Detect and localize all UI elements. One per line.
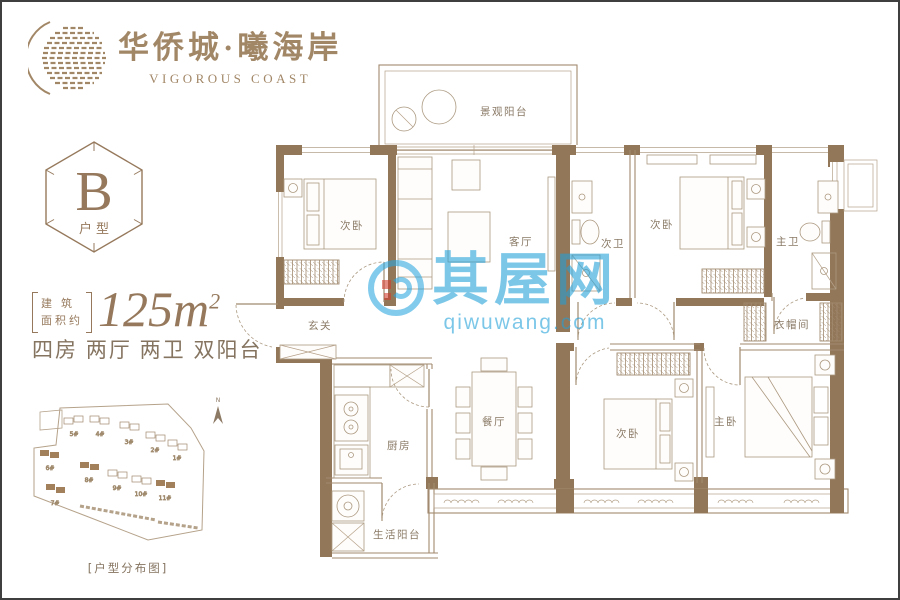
room-label-cloakroom: 衣帽间 xyxy=(774,318,810,331)
bathroom-second: 次卫 xyxy=(572,181,625,340)
layout-description: 四房 两厅 两卫 双阳台 xyxy=(32,334,263,364)
site-plan-caption: [户型分布图] xyxy=(88,561,168,575)
room-label-bedroom-a: 次卧 xyxy=(340,219,364,232)
unit-badge-label: 户型 xyxy=(79,221,113,237)
site-building: 5# xyxy=(64,416,83,438)
master-bedroom: 主卧 xyxy=(704,347,835,479)
crescent-moon-logo xyxy=(28,14,110,102)
room-label-living: 客厅 xyxy=(509,235,533,248)
area-value: 125m2 xyxy=(98,284,220,334)
dining-room: 餐厅 xyxy=(456,358,532,480)
bedroom-c: 次卧 xyxy=(576,347,693,481)
bay-window-strip xyxy=(428,487,848,513)
svg-text:10#: 10# xyxy=(135,491,148,498)
svg-text:5#: 5# xyxy=(70,431,79,438)
site-building-highlight: 8# xyxy=(80,462,99,484)
room-label-bedroom-b: 次卧 xyxy=(650,218,674,231)
svg-text:2#: 2# xyxy=(151,447,160,454)
cloakroom: 衣帽间 xyxy=(744,303,842,341)
room-label-foyer: 玄关 xyxy=(308,319,332,332)
svg-text:1#: 1# xyxy=(173,455,182,462)
svg-text:7#: 7# xyxy=(51,500,60,507)
room-label-master-bedroom: 主卧 xyxy=(714,415,738,428)
unit-badge-letter: B xyxy=(75,161,112,223)
unit-type-badge: B 户型 xyxy=(40,138,148,261)
north-arrow-icon: N xyxy=(213,397,223,424)
area-bracket-bottom: 面积约 xyxy=(41,313,83,330)
kitchen: 厨房 xyxy=(334,365,429,478)
site-building: 4# xyxy=(90,416,109,438)
floorplan-sheet: 华侨城·曦海岸 VIGOROUS COAST B 户型 建 筑 面积约 125m… xyxy=(0,0,900,600)
room-label-service-balcony: 生活阳台 xyxy=(373,528,421,541)
site-building-highlight: 6# xyxy=(40,450,59,472)
site-building: 2# xyxy=(146,432,165,454)
floor-plan: 景观阳台 xyxy=(232,57,892,582)
svg-text:9#: 9# xyxy=(113,485,122,492)
living-room: 客厅 xyxy=(398,157,555,289)
area-info: 建 筑 面积约 125m2 xyxy=(32,284,220,334)
svg-text:11#: 11# xyxy=(159,495,172,502)
svg-text:8#: 8# xyxy=(85,477,94,484)
site-building-highlight: 7# xyxy=(46,484,65,507)
room-label-master-bath: 主卫 xyxy=(776,236,800,248)
room-label-view-balcony: 景观阳台 xyxy=(480,105,528,118)
area-bracket: 建 筑 面积约 xyxy=(32,292,92,333)
site-building: 1# xyxy=(168,440,187,462)
site-building: 3# xyxy=(120,422,139,446)
svg-text:3#: 3# xyxy=(125,439,134,446)
room-label-bedroom-c: 次卧 xyxy=(616,427,640,440)
room-label-dining: 餐厅 xyxy=(482,415,506,428)
site-building-highlight: 11# xyxy=(156,480,175,502)
svg-text:4#: 4# xyxy=(96,431,105,438)
bedroom-a: 次卧 xyxy=(284,179,384,302)
svg-text:6#: 6# xyxy=(46,465,55,472)
area-bracket-top: 建 筑 xyxy=(41,296,83,313)
svg-text:N: N xyxy=(216,397,221,404)
room-label-bath-second: 次卫 xyxy=(601,237,625,250)
foyer: 玄关 xyxy=(236,304,336,359)
room-label-kitchen: 厨房 xyxy=(387,439,411,452)
site-plan: N 5# 4# 3# 2# 1# 6# 8# 9# 10# 11# 7# [户型… xyxy=(28,388,243,593)
site-building: 10# xyxy=(132,476,151,498)
site-building: 9# xyxy=(108,470,127,492)
service-balcony: 生活阳台 xyxy=(332,483,421,551)
view-balcony: 景观阳台 xyxy=(379,65,577,150)
